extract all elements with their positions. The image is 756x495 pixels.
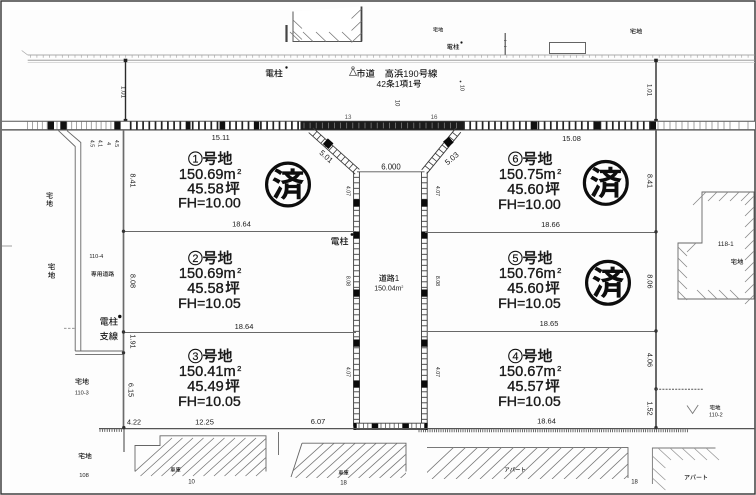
svg-text:1.01: 1.01 (120, 86, 127, 99)
svg-text:10: 10 (394, 100, 400, 107)
svg-text:1.52: 1.52 (646, 401, 655, 415)
svg-text:110-4: 110-4 (89, 254, 103, 260)
svg-text:150.69m: 150.69m (179, 167, 236, 183)
svg-text:6.15: 6.15 (127, 383, 136, 397)
svg-text:2: 2 (401, 285, 403, 289)
svg-text:1.91: 1.91 (129, 334, 138, 348)
svg-text:1: 1 (395, 79, 400, 89)
svg-text:10: 10 (459, 85, 465, 91)
svg-text:15.11: 15.11 (212, 133, 230, 142)
svg-text:FH=10.05: FH=10.05 (498, 296, 561, 312)
svg-text:150.69m: 150.69m (179, 266, 236, 282)
svg-text:3: 3 (192, 351, 198, 363)
svg-text:8.08: 8.08 (434, 276, 440, 286)
svg-text:42: 42 (377, 79, 387, 89)
svg-text:18.66: 18.66 (541, 220, 560, 229)
svg-text:110-2: 110-2 (709, 413, 723, 419)
svg-text:45.57: 45.57 (507, 379, 544, 395)
svg-text:4.22: 4.22 (127, 418, 141, 427)
svg-text:150.75m: 150.75m (499, 167, 556, 183)
svg-text:1: 1 (395, 274, 400, 283)
svg-text:18.65: 18.65 (540, 319, 559, 328)
svg-text:18: 18 (631, 480, 638, 486)
svg-text:18.64: 18.64 (537, 416, 556, 425)
svg-text:8.41: 8.41 (646, 174, 655, 188)
svg-text:15.08: 15.08 (562, 134, 581, 143)
svg-text:8.06: 8.06 (646, 274, 655, 288)
svg-text:110-3: 110-3 (75, 391, 89, 397)
svg-text:118-1: 118-1 (718, 241, 734, 248)
svg-text:6.07: 6.07 (311, 417, 326, 426)
svg-text:2: 2 (557, 364, 561, 373)
svg-text:2: 2 (237, 364, 241, 373)
svg-text:1: 1 (408, 79, 413, 89)
svg-text:4.07: 4.07 (345, 186, 351, 196)
svg-text:4.5: 4.5 (89, 140, 95, 147)
svg-text:2: 2 (237, 167, 241, 176)
svg-text:4: 4 (105, 142, 111, 145)
svg-text:FH=10.00: FH=10.00 (178, 196, 241, 212)
svg-text:2: 2 (557, 167, 561, 176)
svg-text:18.64: 18.64 (232, 220, 251, 229)
svg-text:4.1: 4.1 (97, 140, 103, 147)
svg-text:6.000: 6.000 (381, 163, 401, 172)
svg-text:2: 2 (237, 266, 241, 275)
svg-text:150.76m: 150.76m (499, 266, 556, 282)
svg-text:2: 2 (557, 266, 561, 275)
svg-text:FH=10.05: FH=10.05 (178, 296, 241, 312)
svg-text:150.04m: 150.04m (374, 286, 401, 293)
svg-text:4: 4 (512, 351, 518, 363)
svg-text:8.41: 8.41 (129, 173, 138, 187)
svg-text:190: 190 (403, 69, 419, 79)
svg-text:4.06: 4.06 (646, 353, 655, 367)
svg-text:8.08: 8.08 (345, 276, 351, 286)
svg-text:45.60: 45.60 (507, 281, 544, 297)
svg-text:4.07: 4.07 (434, 367, 440, 377)
svg-text:4.5: 4.5 (113, 140, 119, 147)
svg-text:FH=10.00: FH=10.00 (498, 197, 561, 213)
svg-text:16: 16 (431, 114, 438, 121)
svg-text:FH=10.05: FH=10.05 (498, 394, 561, 410)
svg-text:8.08: 8.08 (129, 274, 138, 288)
svg-text:18: 18 (340, 481, 347, 487)
svg-text:45.60: 45.60 (507, 182, 544, 198)
svg-text:45.58: 45.58 (187, 281, 224, 297)
svg-text:4.07: 4.07 (345, 367, 351, 377)
svg-text:13: 13 (345, 114, 352, 121)
svg-text:2: 2 (192, 253, 198, 265)
svg-text:108: 108 (79, 473, 89, 479)
svg-text:150.41m: 150.41m (179, 364, 236, 380)
svg-text:1: 1 (192, 154, 198, 166)
svg-text:4.07: 4.07 (434, 186, 440, 196)
svg-text:1.01: 1.01 (646, 84, 653, 97)
svg-text:150.67m: 150.67m (499, 364, 556, 380)
svg-text:18.64: 18.64 (235, 322, 254, 331)
svg-text:5: 5 (512, 253, 518, 265)
svg-text:6: 6 (512, 154, 518, 166)
svg-text:12.25: 12.25 (195, 418, 214, 427)
svg-text:45.49: 45.49 (187, 379, 224, 395)
svg-text:10: 10 (188, 480, 195, 486)
svg-text:FH=10.05: FH=10.05 (178, 394, 241, 410)
